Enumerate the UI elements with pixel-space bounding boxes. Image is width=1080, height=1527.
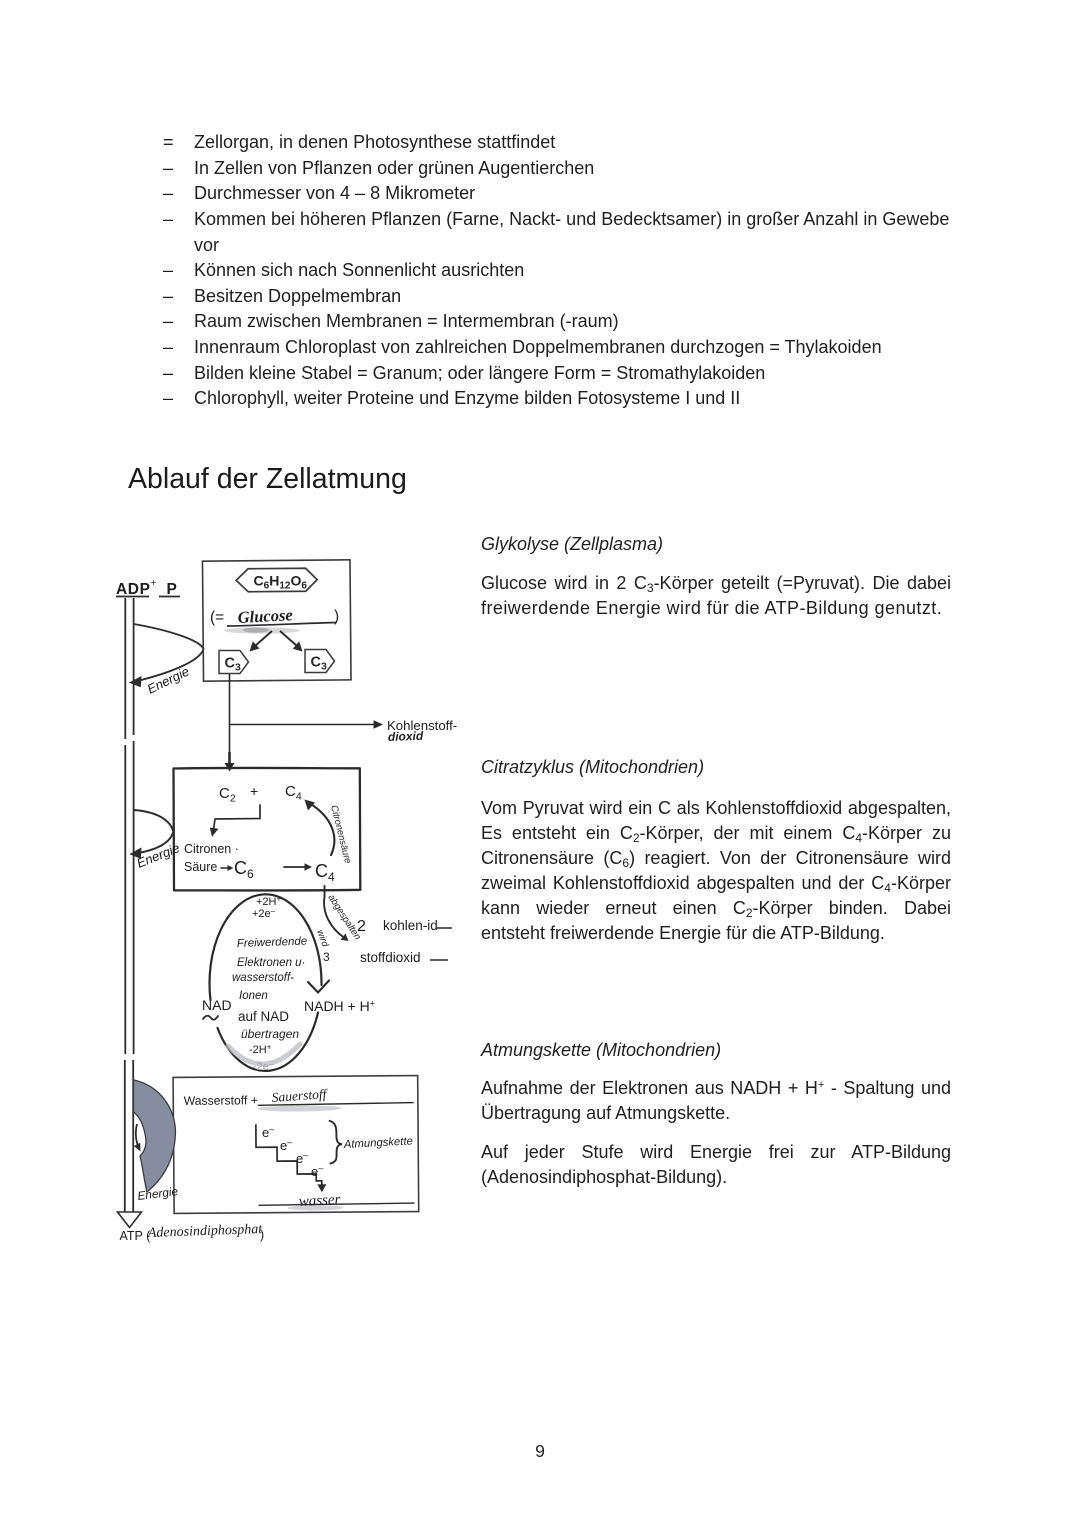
svg-text:(=: (= (210, 609, 224, 626)
svg-text:C6: C6 (234, 858, 254, 881)
svg-text:+2e–: +2e– (252, 907, 276, 921)
svg-text:3: 3 (323, 950, 330, 964)
svg-text:Wasserstoff +: Wasserstoff + (184, 1093, 258, 1108)
svg-text:): ) (260, 1228, 264, 1242)
svg-text:Atmungskette: Atmungskette (343, 1135, 414, 1151)
svg-text:Adenosindiphosphat: Adenosindiphosphat (147, 1222, 264, 1241)
svg-text:Sauerstoff: Sauerstoff (271, 1086, 329, 1105)
svg-text:2: 2 (357, 918, 366, 935)
svg-text:NAD: NAD (202, 997, 232, 1013)
svg-text:NADH + H+: NADH + H+ (304, 998, 375, 1014)
svg-text:Glucose: Glucose (237, 605, 293, 627)
svg-text:+2H+: +2H+ (256, 895, 282, 909)
svg-text:wasserstoff-: wasserstoff- (232, 972, 294, 984)
svg-text:Freiwerdende: Freiwerdende (237, 936, 308, 950)
svg-text:Elektronen u·: Elektronen u· (237, 957, 305, 969)
svg-text:dioxid: dioxid (388, 729, 424, 744)
svg-text:C4: C4 (315, 861, 335, 884)
svg-text:C4: C4 (285, 783, 302, 803)
svg-text:auf NAD: auf NAD (238, 1009, 289, 1024)
svg-text:stoffdioxid: stoffdioxid (360, 950, 421, 965)
svg-text:Citronen ·: Citronen · (184, 842, 239, 856)
svg-text:e–: e– (296, 1150, 308, 1166)
svg-text:+: + (151, 577, 157, 589)
svg-text:C6H12O6: C6H12O6 (254, 573, 308, 592)
svg-text:Energie: Energie (137, 1184, 180, 1203)
svg-text:wasser: wasser (298, 1192, 341, 1210)
svg-text:P: P (167, 581, 177, 598)
svg-text:e–: e– (262, 1124, 274, 1140)
svg-text:e–: e– (311, 1163, 323, 1179)
svg-text:Säure: Säure (184, 860, 217, 874)
svg-text:Energie: Energie (145, 664, 192, 697)
svg-text:+: + (250, 783, 258, 799)
svg-text:ATP (: ATP ( (120, 1229, 152, 1243)
svg-text:kohlen-id: kohlen-id (383, 918, 438, 933)
svg-text:e–: e– (280, 1137, 292, 1153)
svg-text:Ionen: Ionen (239, 990, 268, 1002)
svg-text:ADP: ADP (116, 581, 151, 598)
svg-text:übertragen: übertragen (241, 1027, 299, 1041)
svg-text:C2: C2 (219, 785, 236, 805)
svg-text:-2H+: -2H+ (249, 1043, 272, 1057)
